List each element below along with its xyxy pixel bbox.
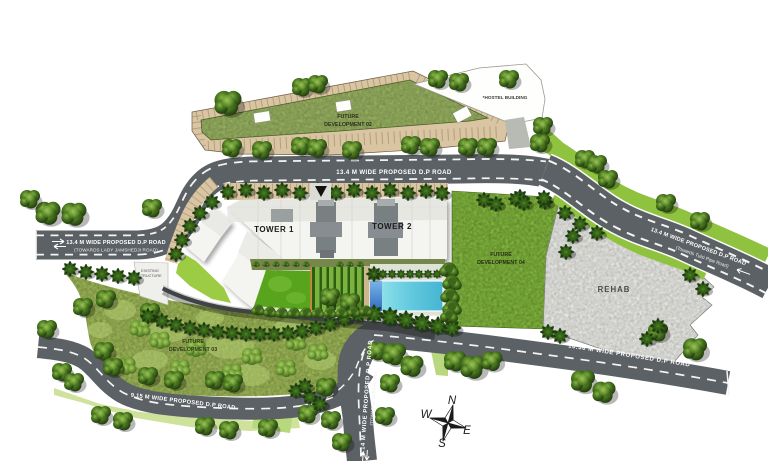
svg-text:*HOSTEL BUILDING: *HOSTEL BUILDING: [483, 95, 528, 100]
svg-text:STRUCTURE: STRUCTURE: [138, 274, 162, 278]
svg-text:13.4 M WIDE PROPOSED D.P ROAD: 13.4 M WIDE PROPOSED D.P ROAD: [336, 169, 452, 176]
svg-text:S: S: [438, 438, 446, 450]
svg-text:DEVELOPMENT 04: DEVELOPMENT 04: [477, 260, 525, 266]
svg-text:DEVELOPMENT 03: DEVELOPMENT 03: [169, 347, 218, 353]
svg-text:TOWER 1: TOWER 1: [254, 225, 294, 234]
svg-text:W: W: [421, 409, 433, 421]
svg-text:(TOWARDS LADY JAMSHEDJI ROAD): (TOWARDS LADY JAMSHEDJI ROAD): [74, 248, 158, 253]
svg-text:REHAB: REHAB: [598, 285, 631, 294]
svg-text:FUTURE: FUTURE: [490, 252, 512, 258]
svg-text:13.4 M WIDE PROPOSED D.P ROAD: 13.4 M WIDE PROPOSED D.P ROAD: [66, 240, 166, 246]
svg-text:FUTURE: FUTURE: [337, 114, 359, 120]
svg-text:EXISTING: EXISTING: [141, 269, 159, 273]
svg-text:DEVELOPMENT 02: DEVELOPMENT 02: [324, 122, 372, 128]
svg-text:E: E: [463, 425, 471, 437]
svg-text:TOWER 2: TOWER 2: [372, 222, 412, 231]
svg-text:FUTURE: FUTURE: [182, 339, 204, 345]
svg-text:N: N: [448, 395, 457, 407]
